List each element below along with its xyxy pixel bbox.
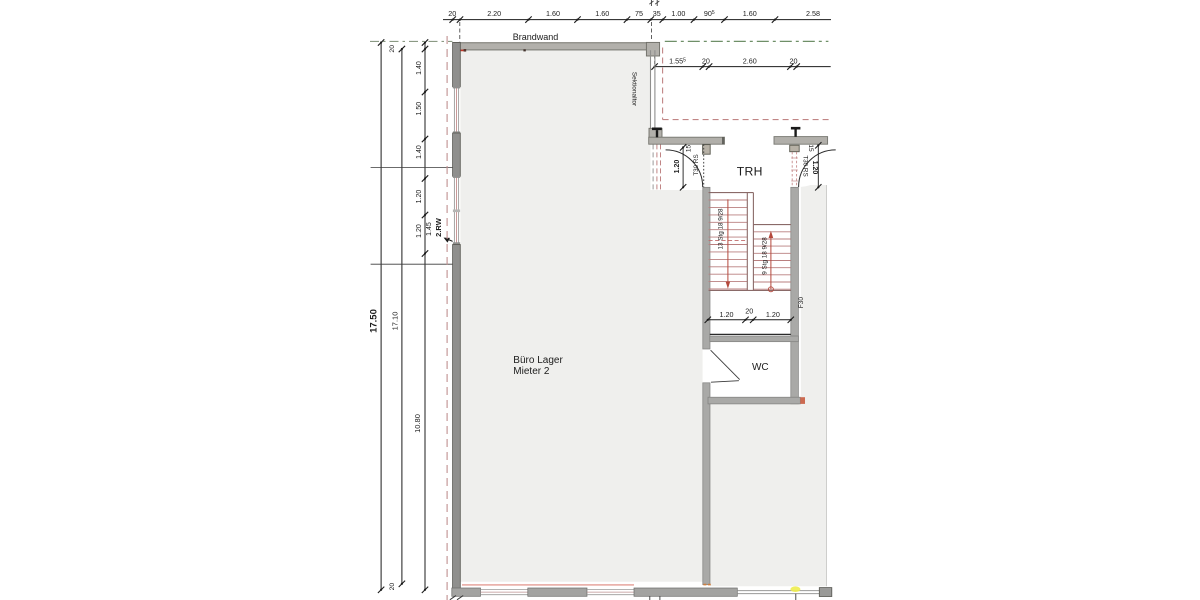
svg-text:20: 20 — [448, 9, 456, 18]
svg-text:1.60: 1.60 — [546, 9, 560, 18]
svg-text:1.20: 1.20 — [416, 190, 423, 204]
svg-text:Sektionaltor: Sektionaltor — [631, 72, 638, 107]
svg-text:TRH: TRH — [737, 164, 763, 178]
svg-text:F30: F30 — [798, 297, 805, 309]
svg-text:2.RW: 2.RW — [434, 217, 443, 237]
svg-text:1.20: 1.20 — [766, 310, 780, 319]
svg-text:Brandwand: Brandwand — [513, 32, 559, 42]
svg-text:2.60: 2.60 — [743, 56, 757, 65]
svg-text:1.20: 1.20 — [674, 160, 681, 174]
svg-text:1.20: 1.20 — [720, 310, 734, 319]
svg-text:T30 RS: T30 RS — [802, 155, 809, 176]
svg-text:WC: WC — [752, 362, 769, 373]
svg-text:Mieter 2: Mieter 2 — [513, 366, 550, 377]
svg-text:20: 20 — [389, 45, 396, 53]
svg-text:35: 35 — [653, 9, 661, 18]
svg-text:10.80: 10.80 — [413, 414, 422, 433]
svg-text:1.60: 1.60 — [743, 9, 757, 18]
svg-text:1.555: 1.555 — [669, 56, 686, 65]
svg-text:13 Stg 18 9/28: 13 Stg 18 9/28 — [718, 208, 725, 249]
svg-text:17.10: 17.10 — [391, 312, 400, 331]
svg-text:1.40: 1.40 — [416, 61, 423, 75]
svg-text:20: 20 — [389, 583, 396, 591]
svg-text:1.20: 1.20 — [416, 224, 423, 238]
svg-text:905: 905 — [704, 9, 715, 18]
svg-text:15: 15 — [686, 145, 693, 153]
svg-text:Büro Lager: Büro Lager — [513, 355, 563, 366]
svg-text:1.60: 1.60 — [595, 9, 609, 18]
svg-text:2.20: 2.20 — [487, 9, 501, 18]
svg-text:75: 75 — [635, 9, 643, 18]
svg-text:T30 RS: T30 RS — [693, 154, 700, 175]
svg-text:9 Stg 18 9/28: 9 Stg 18 9/28 — [761, 237, 768, 275]
svg-text:1.40: 1.40 — [416, 145, 423, 159]
svg-text:1.00: 1.00 — [671, 9, 685, 18]
svg-text:20: 20 — [745, 307, 753, 316]
svg-text:1.45: 1.45 — [426, 222, 433, 236]
svg-text:17.50: 17.50 — [369, 309, 380, 333]
svg-text:1.50: 1.50 — [416, 102, 423, 116]
svg-text:2.58: 2.58 — [806, 9, 820, 18]
svg-text:20: 20 — [702, 56, 710, 65]
svg-text:1.20: 1.20 — [811, 161, 818, 175]
svg-text:20: 20 — [790, 56, 798, 65]
svg-text:15: 15 — [807, 144, 814, 152]
